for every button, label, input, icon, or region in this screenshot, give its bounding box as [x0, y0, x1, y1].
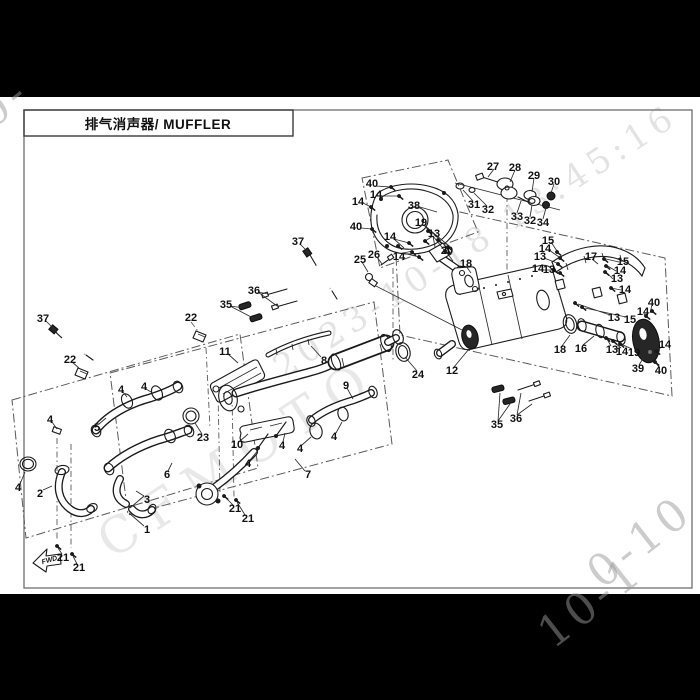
part-label-35: 35 [491, 419, 503, 431]
part-label-14: 14 [637, 306, 650, 318]
page-title: 排气消声器/ MUFFLER [85, 116, 232, 132]
part-label-40: 40 [648, 297, 660, 309]
part-label-24: 24 [412, 369, 425, 381]
part-label-40: 40 [350, 221, 362, 233]
part-label-4: 4 [47, 414, 54, 426]
part-label-4: 4 [279, 440, 286, 452]
part-label-37: 37 [292, 236, 304, 248]
part-label-23: 23 [197, 432, 209, 444]
part-label-13: 13 [428, 228, 440, 240]
part-label-40: 40 [655, 365, 667, 377]
part-label-36: 36 [248, 285, 260, 297]
part-label-5: 5 [94, 422, 100, 434]
part-label-19: 19 [415, 217, 427, 229]
part-label-2: 2 [37, 488, 43, 500]
part-label-7: 7 [305, 469, 311, 481]
part-label-30: 30 [548, 176, 560, 188]
part-label-11: 11 [219, 346, 231, 358]
part-label-26: 26 [368, 249, 380, 261]
part-label-13: 13 [543, 264, 555, 276]
part-label-38: 38 [408, 200, 420, 212]
part-label-39: 39 [632, 363, 644, 375]
part-label-14: 14 [370, 189, 383, 201]
part-label-32: 32 [524, 215, 536, 227]
part-label-4: 4 [141, 381, 148, 393]
part-label-22: 22 [64, 354, 76, 366]
part-label-8: 8 [321, 355, 327, 367]
part-label-21: 21 [229, 503, 241, 515]
nut-30 [547, 192, 555, 200]
part-label-13: 13 [534, 251, 546, 263]
part-label-4: 4 [15, 482, 22, 494]
part-label-36: 36 [510, 413, 522, 425]
part-label-6: 6 [164, 469, 170, 481]
part-label-9: 9 [343, 380, 349, 392]
part-label-31: 31 [468, 199, 480, 211]
part-label-4: 4 [245, 458, 252, 470]
part-label-18: 18 [554, 344, 566, 356]
part-label-35: 35 [220, 299, 232, 311]
part-label-33: 33 [511, 211, 523, 223]
part-label-37: 37 [37, 313, 49, 325]
part-label-21: 21 [73, 562, 85, 574]
part-label-32: 32 [482, 204, 494, 216]
part-label-29: 29 [528, 170, 540, 182]
part-label-14: 14 [384, 231, 397, 243]
part-label-4: 4 [331, 431, 338, 443]
part-label-4: 4 [118, 384, 125, 396]
gasket-18 [452, 267, 479, 294]
part-label-19: 19 [628, 347, 640, 359]
part-label-4: 4 [297, 443, 304, 455]
part-label-14: 14 [659, 339, 672, 351]
part-label-20: 20 [441, 245, 453, 257]
part-label-22: 22 [185, 312, 197, 324]
part-label-16: 16 [575, 343, 587, 355]
part-label-12: 12 [446, 365, 458, 377]
part-label-14: 14 [352, 196, 365, 208]
part-label-21: 21 [57, 552, 69, 564]
part-label-14: 14 [393, 251, 406, 263]
part-label-17: 17 [585, 251, 597, 263]
part-label-1: 1 [144, 524, 150, 536]
part-label-14: 14 [619, 284, 632, 296]
parts-catalog-page: CFMOTO 2023-10-18 13:45:16 排气消声器/ MUFFLE… [0, 0, 700, 700]
part-label-25: 25 [354, 254, 366, 266]
muffler-exploded-diagram: CFMOTO 2023-10-18 13:45:16 排气消声器/ MUFFLE… [0, 0, 700, 700]
part-label-34: 34 [537, 217, 550, 229]
part-label-28: 28 [509, 162, 521, 174]
part-label-3: 3 [144, 494, 150, 506]
part-label-10: 10 [231, 439, 243, 451]
part-label-21: 21 [242, 513, 254, 525]
part-label-18: 18 [460, 258, 472, 270]
part-label-13: 13 [608, 312, 620, 324]
nut-34 [543, 202, 550, 209]
part-label-27: 27 [487, 161, 499, 173]
part-label-15: 15 [624, 314, 636, 326]
